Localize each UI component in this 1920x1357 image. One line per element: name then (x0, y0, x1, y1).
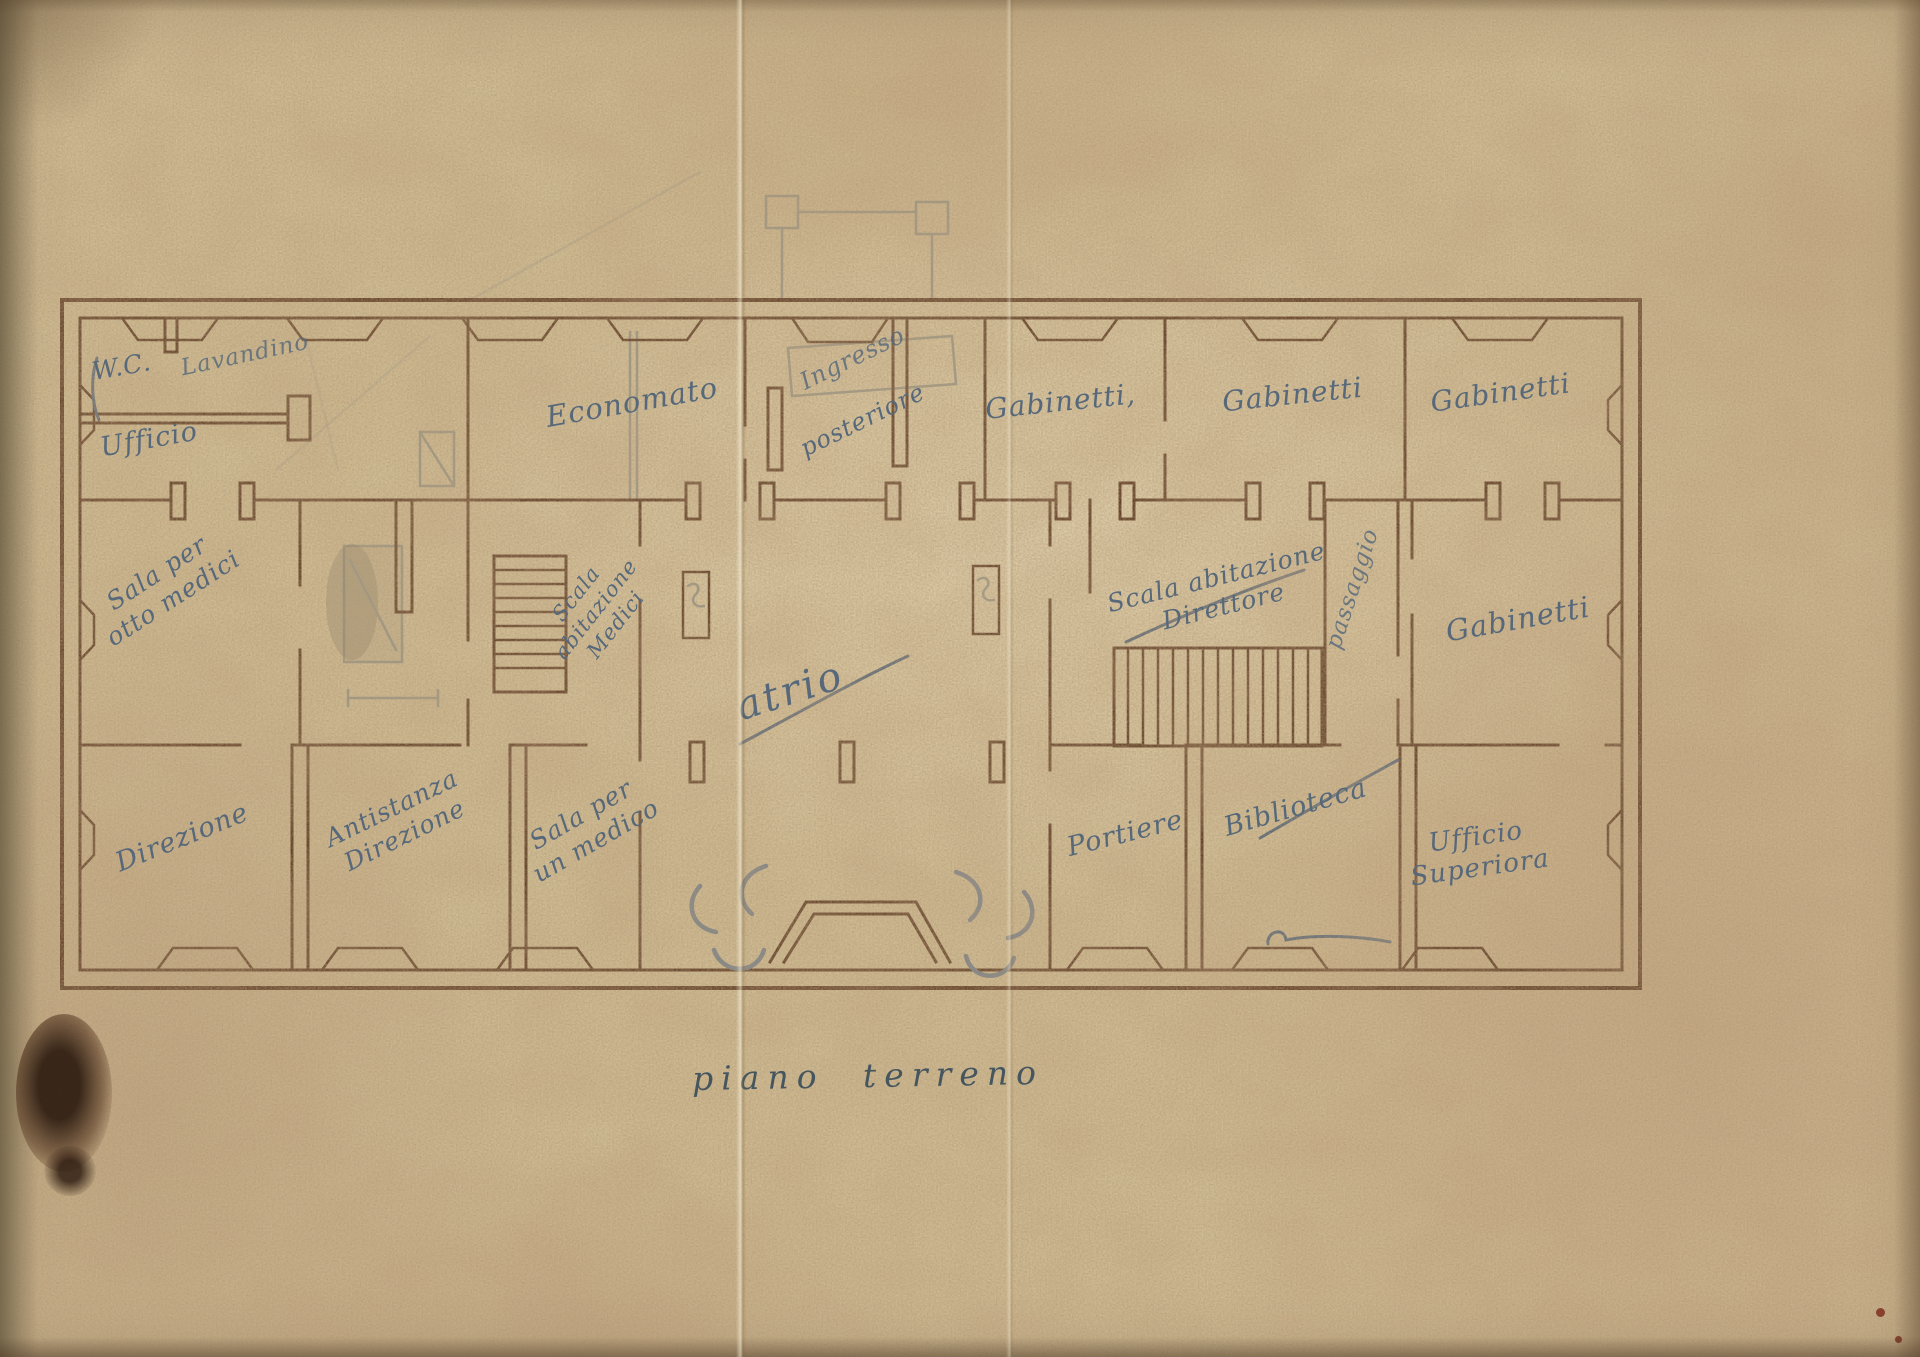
floor-plan-drawing (0, 0, 1920, 1357)
scanned-floor-plan-page: W.C. Lavandino Ufficio Sala per otto med… (0, 0, 1920, 1357)
speckle-overlay (0, 0, 1920, 1357)
plan-title: piano terreno (692, 1053, 1045, 1098)
